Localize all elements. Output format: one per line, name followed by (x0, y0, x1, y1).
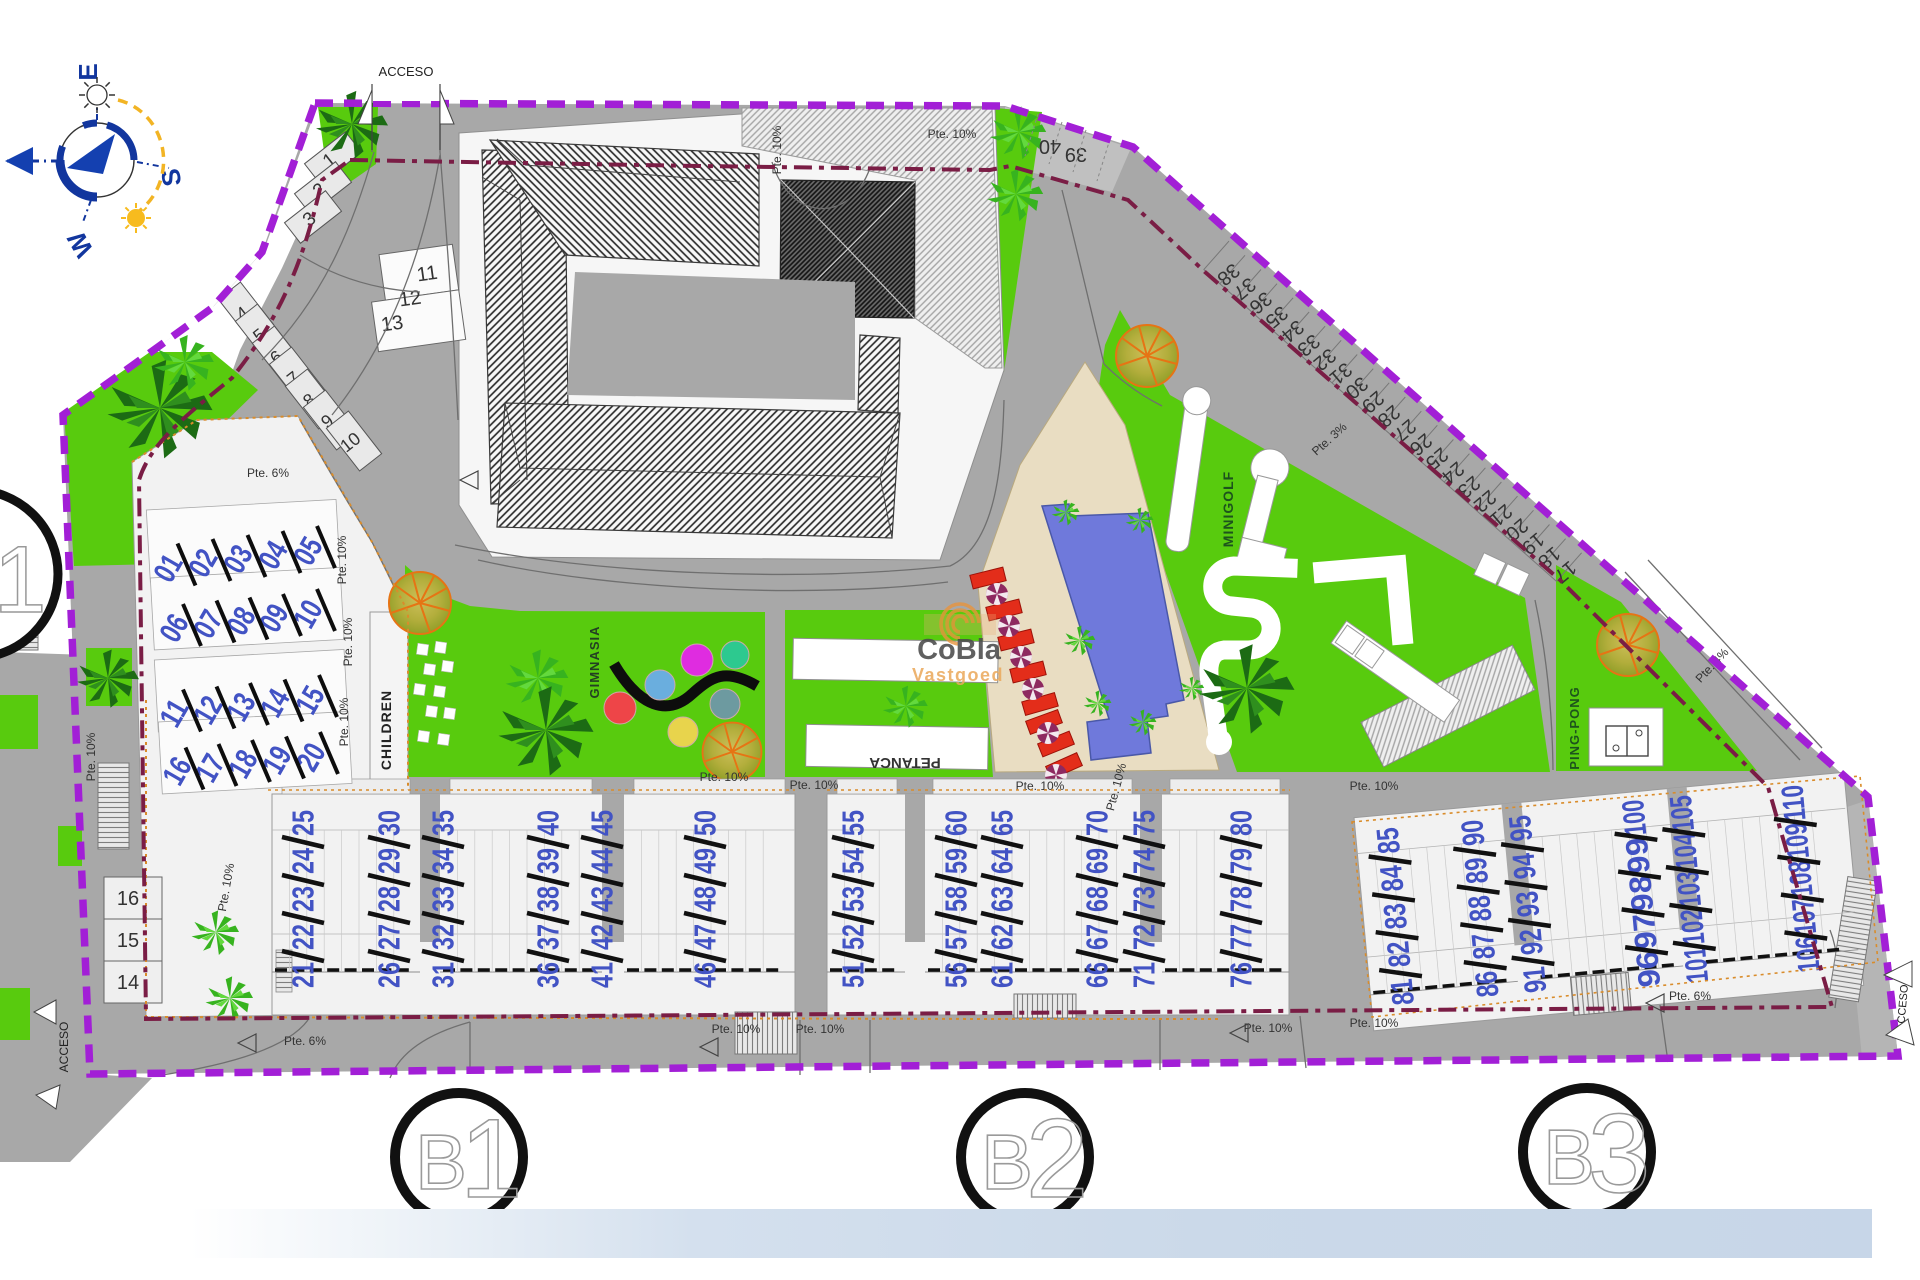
svg-text:49: 49 (688, 848, 723, 874)
svg-text:GIMNASIA: GIMNASIA (587, 626, 602, 699)
svg-text:97: 97 (1626, 912, 1664, 951)
svg-text:39: 39 (1065, 143, 1087, 165)
svg-text:93: 93 (1509, 889, 1546, 918)
svg-text:84: 84 (1373, 863, 1410, 893)
svg-text:Pte. 6%: Pte. 6% (284, 1034, 326, 1048)
svg-text:85: 85 (1370, 826, 1407, 855)
svg-text:Pte. 10%: Pte. 10% (337, 697, 351, 746)
svg-text:110: 110 (1774, 784, 1812, 823)
svg-text:88: 88 (1461, 894, 1498, 923)
svg-text:108: 108 (1781, 859, 1819, 898)
svg-text:53: 53 (836, 886, 871, 912)
svg-text:Pte. 6%: Pte. 6% (1669, 989, 1711, 1003)
svg-text:Pte. 10%: Pte. 10% (1244, 1021, 1293, 1035)
svg-text:99: 99 (1619, 836, 1657, 875)
svg-text:Pte. 10%: Pte. 10% (341, 617, 355, 666)
svg-text:86: 86 (1468, 970, 1505, 999)
svg-text:80: 80 (1224, 810, 1259, 836)
svg-text:11: 11 (415, 262, 439, 287)
svg-text:60: 60 (939, 810, 974, 836)
svg-text:2: 2 (1026, 1096, 1088, 1221)
svg-text:Pte. 6%: Pte. 6% (247, 466, 289, 480)
svg-text:41: 41 (585, 962, 620, 988)
svg-text:56: 56 (939, 962, 974, 988)
svg-text:61: 61 (985, 962, 1020, 988)
svg-text:30: 30 (372, 810, 407, 836)
svg-text:92: 92 (1513, 927, 1550, 956)
svg-text:50: 50 (688, 810, 723, 836)
svg-text:44: 44 (585, 847, 620, 874)
svg-text:21: 21 (286, 962, 321, 988)
svg-text:34: 34 (426, 847, 461, 874)
svg-text:40: 40 (1039, 135, 1061, 157)
svg-text:ACCESO: ACCESO (57, 1022, 71, 1073)
svg-text:71: 71 (1127, 962, 1162, 988)
svg-text:Pte. 10%: Pte. 10% (712, 1022, 761, 1036)
svg-text:MINIGOLF: MINIGOLF (1220, 471, 1236, 547)
svg-text:35: 35 (426, 810, 461, 836)
svg-text:22: 22 (286, 924, 321, 950)
svg-text:46: 46 (688, 962, 723, 988)
svg-text:72: 72 (1127, 924, 1162, 950)
svg-text:73: 73 (1127, 886, 1162, 912)
svg-text:33: 33 (426, 886, 461, 912)
svg-text:67: 67 (1080, 924, 1115, 950)
svg-text:81: 81 (1384, 977, 1421, 1006)
svg-text:ACCESO: ACCESO (379, 64, 434, 79)
svg-text:24: 24 (286, 847, 321, 874)
svg-text:51: 51 (836, 962, 871, 988)
svg-text:48: 48 (688, 886, 723, 912)
svg-text:PETANCA: PETANCA (869, 754, 941, 771)
svg-text:26: 26 (372, 962, 407, 988)
svg-text:47: 47 (688, 924, 723, 950)
svg-text:100: 100 (1615, 798, 1653, 837)
svg-text:36: 36 (531, 962, 566, 988)
svg-text:Pte. 10%: Pte. 10% (1016, 779, 1065, 793)
svg-text:75: 75 (1127, 810, 1162, 836)
svg-text:87: 87 (1465, 932, 1502, 961)
svg-text:Pte. 10%: Pte. 10% (700, 770, 749, 784)
svg-text:62: 62 (985, 924, 1020, 950)
svg-text:29: 29 (372, 848, 407, 874)
svg-text:27: 27 (372, 924, 407, 950)
svg-text:Pte. 10%: Pte. 10% (84, 732, 98, 781)
svg-text:102: 102 (1673, 907, 1711, 946)
svg-text:64: 64 (985, 847, 1020, 874)
svg-text:16: 16 (117, 888, 139, 910)
svg-text:96: 96 (1629, 950, 1667, 989)
svg-text:28: 28 (372, 886, 407, 912)
svg-text:83: 83 (1377, 902, 1414, 931)
svg-text:54: 54 (836, 847, 871, 874)
svg-text:Pte. 10%: Pte. 10% (335, 535, 349, 584)
svg-text:57: 57 (939, 924, 974, 950)
svg-text:58: 58 (939, 886, 974, 912)
svg-text:66: 66 (1080, 962, 1115, 988)
svg-text:59: 59 (939, 848, 974, 874)
svg-text:65: 65 (985, 810, 1020, 836)
svg-text:31: 31 (426, 962, 461, 988)
svg-text:Pte. 10%: Pte. 10% (1350, 1016, 1399, 1030)
svg-text:82: 82 (1380, 940, 1417, 969)
svg-text:40: 40 (531, 810, 566, 836)
svg-text:E: E (73, 63, 103, 80)
svg-text:CHILDREN: CHILDREN (378, 690, 394, 770)
svg-text:32: 32 (426, 924, 461, 950)
svg-text:1: 1 (460, 1096, 522, 1221)
svg-text:43: 43 (585, 886, 620, 912)
svg-text:Vastgoed: Vastgoed (912, 665, 1004, 685)
svg-text:79: 79 (1224, 848, 1259, 874)
svg-text:42: 42 (585, 924, 620, 950)
svg-text:70: 70 (1080, 810, 1115, 836)
svg-text:15: 15 (117, 930, 139, 952)
svg-text:69: 69 (1080, 848, 1115, 874)
svg-text:Pte. 10%: Pte. 10% (1350, 779, 1399, 793)
svg-text:23: 23 (286, 886, 321, 912)
svg-text:68: 68 (1080, 886, 1115, 912)
svg-text:55: 55 (836, 810, 871, 836)
svg-text:14: 14 (117, 972, 139, 994)
svg-text:3: 3 (1588, 1091, 1650, 1216)
svg-text:Pte. 10%: Pte. 10% (928, 127, 977, 141)
svg-text:95: 95 (1502, 814, 1539, 843)
svg-text:1: 1 (0, 527, 46, 633)
svg-text:90: 90 (1454, 818, 1491, 847)
svg-text:105: 105 (1663, 794, 1701, 833)
svg-text:76: 76 (1224, 962, 1259, 988)
svg-text:45: 45 (585, 810, 620, 836)
svg-text:91: 91 (1516, 965, 1553, 994)
svg-text:25: 25 (286, 810, 321, 836)
svg-text:Pte. 10%: Pte. 10% (790, 778, 839, 792)
svg-text:104: 104 (1666, 831, 1704, 871)
svg-text:CoBla: CoBla (917, 634, 1002, 666)
svg-text:74: 74 (1127, 847, 1162, 874)
svg-text:52: 52 (836, 924, 871, 950)
svg-text:101: 101 (1677, 945, 1715, 984)
svg-text:38: 38 (531, 886, 566, 912)
svg-text:98: 98 (1622, 874, 1660, 913)
svg-text:103: 103 (1670, 870, 1708, 909)
svg-text:37: 37 (531, 924, 566, 950)
svg-text:Pte. 10%: Pte. 10% (796, 1022, 845, 1036)
svg-text:PING-PONG: PING-PONG (1567, 686, 1582, 769)
svg-text:94: 94 (1506, 851, 1543, 881)
svg-text:63: 63 (985, 886, 1020, 912)
svg-text:39: 39 (531, 848, 566, 874)
svg-text:77: 77 (1224, 924, 1259, 950)
svg-text:89: 89 (1458, 856, 1495, 885)
svg-text:78: 78 (1224, 886, 1259, 912)
